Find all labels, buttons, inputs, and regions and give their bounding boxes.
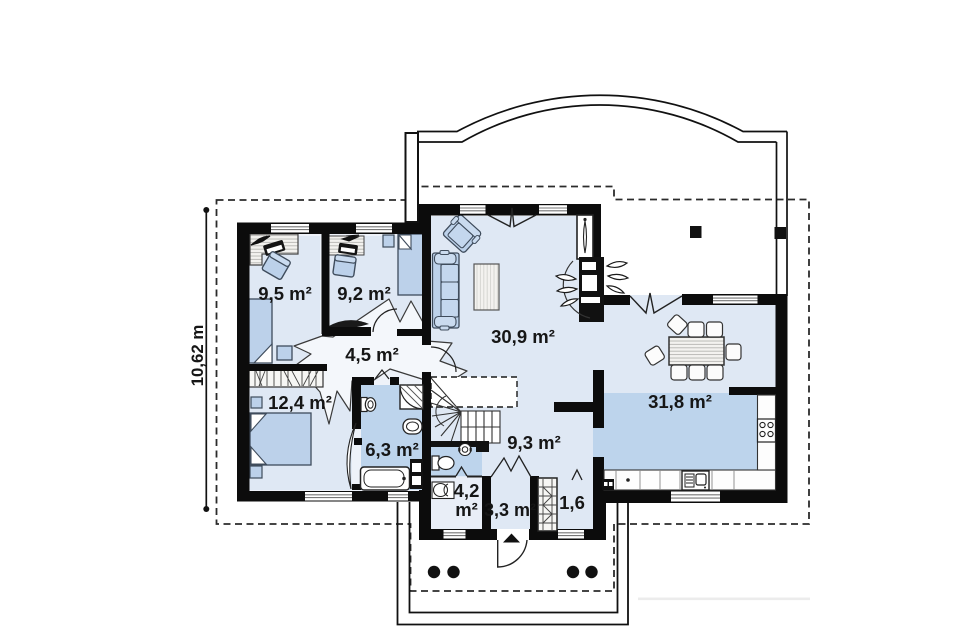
svg-text:30,9 m²: 30,9 m²	[491, 326, 555, 347]
svg-text:4,2: 4,2	[454, 480, 480, 501]
svg-text:1,6: 1,6	[559, 492, 585, 513]
svg-text:4,5 m²: 4,5 m²	[345, 344, 398, 365]
svg-text:12,4 m²: 12,4 m²	[268, 392, 332, 413]
svg-text:9,3 m²: 9,3 m²	[507, 432, 560, 453]
svg-text:9,5 m²: 9,5 m²	[258, 283, 311, 304]
svg-text:10,62 m: 10,62 m	[188, 325, 207, 387]
svg-text:31,8 m²: 31,8 m²	[648, 391, 712, 412]
svg-text:m²: m²	[455, 499, 478, 520]
svg-text:9,2 m²: 9,2 m²	[337, 283, 390, 304]
svg-text:6,3 m²: 6,3 m²	[365, 439, 418, 460]
svg-text:3,3 m²: 3,3 m²	[484, 500, 536, 520]
